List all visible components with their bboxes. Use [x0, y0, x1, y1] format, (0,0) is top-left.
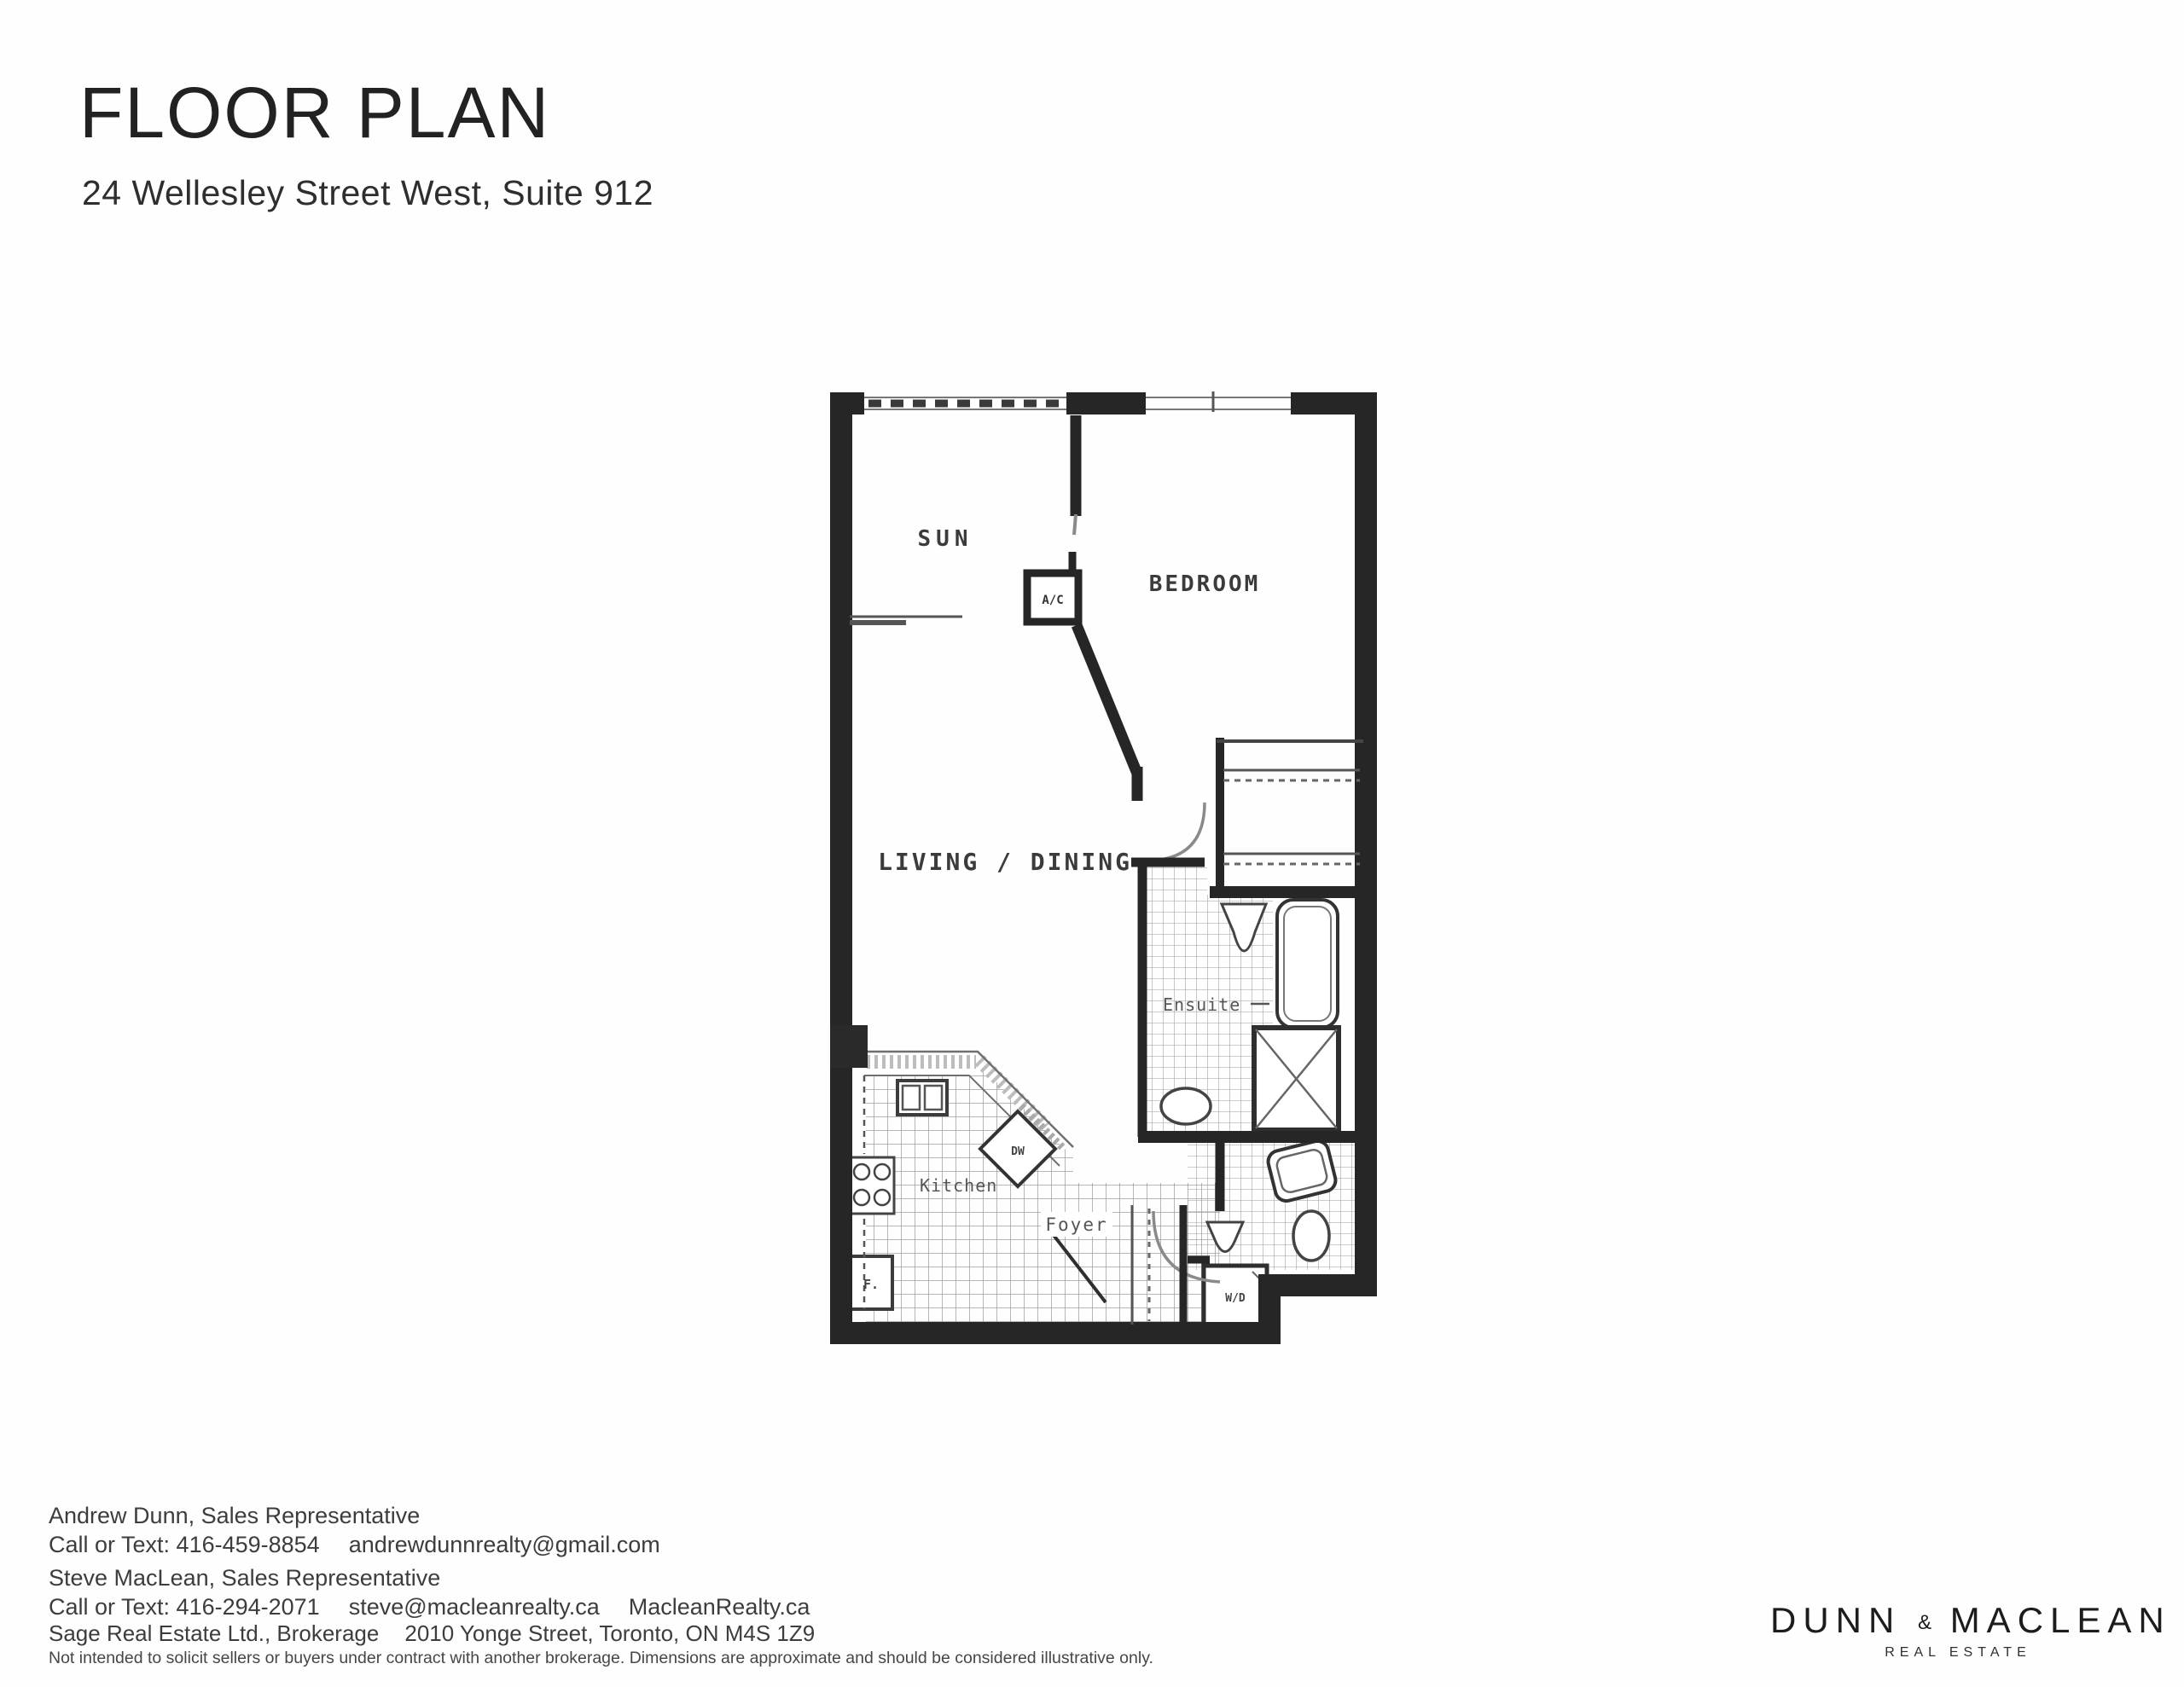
label-bedroom: BEDROOM: [1149, 571, 1261, 597]
ensuite-vestibule-tile: [1147, 866, 1207, 896]
brand-logo: DUNN & MACLEAN REAL ESTATE: [1770, 1600, 2146, 1661]
sink-basin-left: [903, 1086, 920, 1110]
logo-left: DUNN: [1770, 1600, 1901, 1640]
ensuite-toilet: [1161, 1088, 1211, 1124]
label-sun: SUN: [918, 526, 973, 552]
wall-block: [830, 1025, 868, 1068]
brokerage-line: Sage Real Estate Ltd., Brokerage 2010 Yo…: [49, 1620, 815, 1647]
brokerage-address: 2010 Yonge Street, Toronto, ON M4S 1Z9: [404, 1620, 815, 1647]
floor-plan-page: FLOOR PLAN 24 Wellesley Street West, Sui…: [0, 0, 2184, 1687]
divider-tail: [1074, 514, 1076, 535]
agent-website[interactable]: MacleanRealty.ca: [629, 1592, 810, 1621]
logo-right: MACLEAN: [1950, 1600, 2171, 1640]
logo-tagline: REAL ESTATE: [1770, 1645, 2146, 1661]
disclaimer-text: Not intended to solicit sellers or buyer…: [49, 1649, 1153, 1668]
agent-email[interactable]: steve@macleanrealty.ca: [349, 1592, 600, 1621]
page-subtitle: 24 Wellesley Street West, Suite 912: [82, 173, 653, 213]
agent-email[interactable]: andrewdunnrealty@gmail.com: [349, 1530, 660, 1559]
logo-ampersand-icon: &: [1918, 1611, 1933, 1634]
label-foyer: Foyer: [1045, 1215, 1107, 1235]
agent-phone: Call or Text: 416-294-2071: [49, 1592, 320, 1621]
label-living-dining: LIVING / DINING: [878, 848, 1132, 876]
agent-block-2: Steve MacLean, Sales Representative Call…: [49, 1563, 810, 1621]
label-ac: A/C: [1042, 594, 1063, 607]
bath-toilet: [1293, 1211, 1329, 1261]
bedroom-door-arc: [1150, 803, 1205, 861]
bedroom-window: [1146, 392, 1291, 415]
sink-basin-right: [925, 1086, 942, 1110]
agent-name: Andrew Dunn, Sales Representative: [49, 1501, 660, 1530]
label-kitchen: Kitchen: [920, 1175, 997, 1196]
agent-block-1: Andrew Dunn, Sales Representative Call o…: [49, 1501, 660, 1559]
label-wd: W/D: [1225, 1292, 1246, 1305]
floor-plan-drawing: SUN A/C BEDROOM LIVING / DINING Ensuite …: [819, 380, 1399, 1369]
agent-name: Steve MacLean, Sales Representative: [49, 1563, 810, 1592]
label-ensuite: Ensuite: [1163, 994, 1240, 1015]
bathtub: [1277, 900, 1338, 1028]
page-title: FLOOR PLAN: [79, 72, 550, 154]
label-fridge: F.: [863, 1277, 879, 1292]
agent-phone: Call or Text: 416-459-8854: [49, 1530, 320, 1559]
brokerage-name: Sage Real Estate Ltd., Brokerage: [49, 1620, 379, 1647]
logo-wordmark: DUNN & MACLEAN: [1770, 1600, 2146, 1641]
label-dw: DW: [1011, 1145, 1025, 1158]
diagonal-wall: [1077, 625, 1137, 774]
